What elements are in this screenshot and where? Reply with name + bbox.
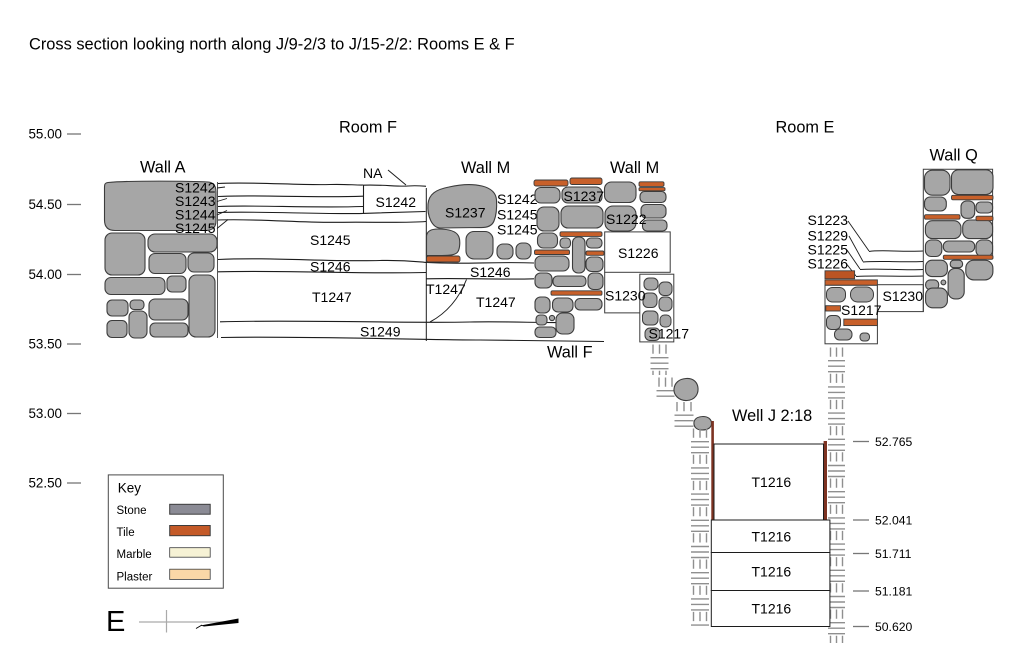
svg-text:T1216: T1216 (752, 474, 792, 490)
svg-text:S1230: S1230 (883, 288, 924, 304)
svg-text:52.041: 52.041 (875, 514, 912, 528)
svg-text:51.711: 51.711 (875, 547, 912, 561)
svg-text:S1230: S1230 (605, 288, 646, 304)
svg-text:50.620: 50.620 (875, 620, 912, 634)
svg-text:S1237: S1237 (564, 188, 605, 204)
svg-text:Wall Q: Wall Q (930, 147, 978, 165)
svg-text:S1242: S1242 (376, 194, 417, 210)
svg-text:Room E: Room E (776, 119, 835, 137)
svg-text:S1222: S1222 (606, 211, 647, 227)
svg-text:Room F: Room F (339, 119, 397, 137)
svg-text:T1247: T1247 (426, 281, 466, 297)
svg-text:Wall F: Wall F (547, 344, 593, 362)
svg-text:E: E (106, 606, 125, 638)
svg-text:Plaster: Plaster (117, 572, 153, 584)
svg-text:S1226: S1226 (808, 256, 849, 272)
svg-text:S1217: S1217 (649, 326, 690, 342)
svg-text:T1216: T1216 (752, 564, 792, 580)
svg-text:S1245: S1245 (497, 222, 538, 238)
svg-text:Marble: Marble (117, 549, 152, 561)
svg-text:53.00: 53.00 (28, 406, 62, 421)
svg-text:Cross section looking north al: Cross section looking north along J/9-2/… (29, 36, 515, 54)
svg-text:Stone: Stone (117, 505, 147, 517)
svg-text:S1245: S1245 (175, 220, 216, 236)
svg-text:S1242: S1242 (497, 191, 538, 207)
svg-text:Wall M: Wall M (610, 159, 659, 177)
svg-text:Key: Key (118, 481, 142, 496)
svg-text:S1245: S1245 (497, 207, 538, 223)
svg-text:54.00: 54.00 (28, 267, 62, 282)
svg-text:53.50: 53.50 (28, 337, 62, 352)
svg-text:S1249: S1249 (360, 324, 401, 340)
svg-text:55.00: 55.00 (28, 127, 62, 142)
svg-text:51.181: 51.181 (875, 585, 912, 599)
svg-text:S1217: S1217 (841, 302, 882, 318)
svg-text:52.765: 52.765 (875, 435, 912, 449)
svg-text:S1246: S1246 (470, 264, 511, 280)
svg-text:NA: NA (363, 165, 383, 181)
svg-text:54.50: 54.50 (28, 197, 62, 212)
svg-text:Tile: Tile (117, 527, 135, 539)
svg-text:T1216: T1216 (752, 529, 792, 545)
svg-text:Wall A: Wall A (140, 159, 186, 177)
svg-text:S1246: S1246 (310, 259, 351, 275)
svg-text:Wall M: Wall M (461, 159, 510, 177)
svg-text:T1216: T1216 (752, 601, 792, 617)
svg-text:S1245: S1245 (310, 232, 351, 248)
svg-text:S1226: S1226 (618, 245, 659, 261)
svg-text:S1237: S1237 (445, 205, 486, 221)
svg-text:T1247: T1247 (476, 294, 516, 310)
svg-text:Well J 2:18: Well J 2:18 (732, 407, 812, 425)
svg-text:T1247: T1247 (312, 289, 352, 305)
svg-text:S1223: S1223 (808, 212, 849, 228)
svg-text:52.50: 52.50 (28, 476, 62, 491)
